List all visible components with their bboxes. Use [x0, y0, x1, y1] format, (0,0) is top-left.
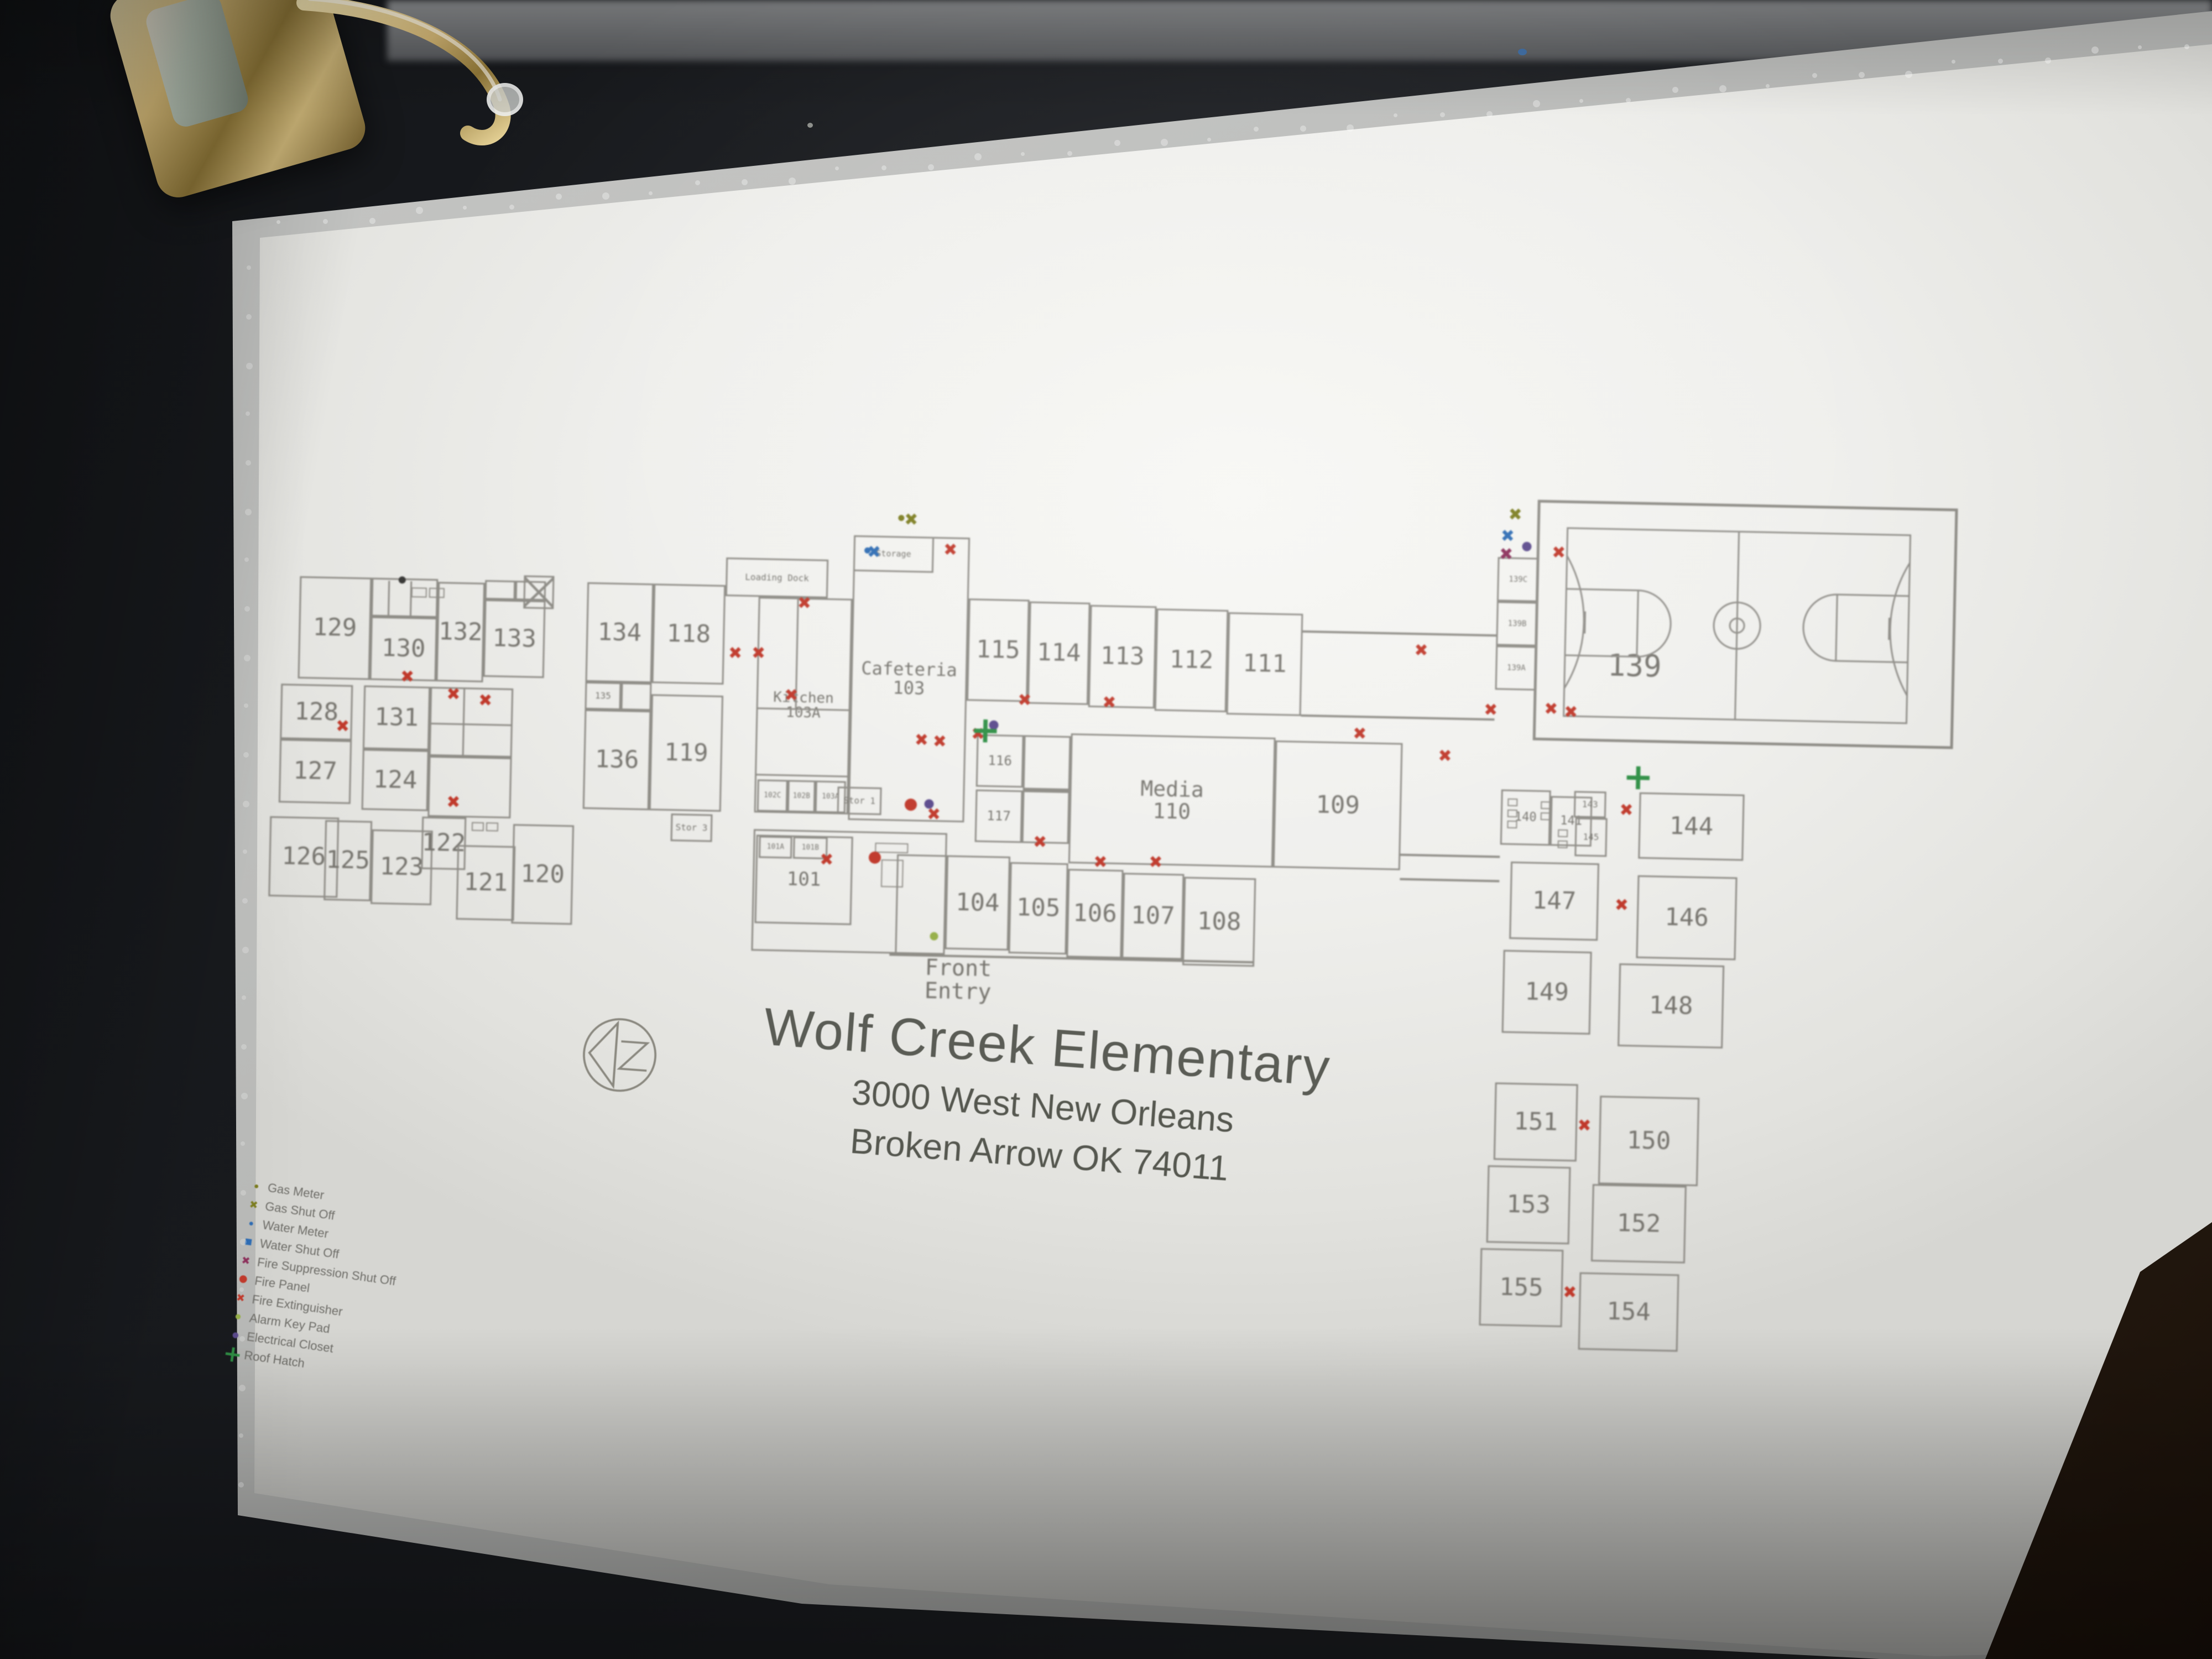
room-134: 134	[586, 582, 654, 683]
room-label: 120	[520, 861, 565, 888]
room-102b: 102B	[787, 780, 816, 812]
room-120: 120	[511, 824, 574, 925]
room-label: 112	[1169, 647, 1213, 674]
room-label: 114	[1037, 640, 1081, 666]
sleeve-bubble	[246, 363, 253, 369]
room-cell	[429, 687, 514, 758]
room-144: 144	[1638, 792, 1744, 861]
room-label: Media110	[1140, 778, 1204, 823]
sleeve-bubble	[242, 995, 246, 1000]
sleeve-bubble	[1486, 111, 1493, 117]
room-label-2: 110	[1140, 800, 1203, 823]
room-139c: 139C	[1497, 557, 1540, 602]
room-label: 129	[312, 615, 357, 641]
room-label: 125	[326, 847, 370, 874]
room-146: 146	[1636, 875, 1737, 961]
room-label: 118	[666, 621, 711, 648]
sleeve-bubble	[1672, 87, 1678, 93]
room-155: 155	[1479, 1248, 1563, 1327]
room-label: 101B	[802, 844, 820, 852]
binder-ring-icon	[265, 0, 575, 210]
room-label: 103A	[822, 793, 839, 801]
room-storage: Storage	[853, 535, 934, 573]
fire-extinguisher-glyph	[236, 1291, 246, 1305]
fixture	[1541, 812, 1551, 820]
room-125: 125	[324, 820, 372, 901]
sleeve-bubble	[649, 191, 653, 195]
room-label: 119	[664, 740, 708, 766]
sleeve-bubble	[2091, 46, 2099, 54]
room-label: 116	[988, 754, 1012, 768]
marker-fire-extinguisher-icon	[1615, 895, 1629, 915]
room-label: 126	[281, 844, 326, 870]
room-label: 147	[1532, 888, 1576, 915]
sleeve-bubble	[1114, 140, 1120, 146]
room-151: 151	[1494, 1082, 1578, 1161]
room-loading-dock: Loading Dock	[726, 557, 828, 598]
fixture	[875, 843, 908, 853]
fixture	[1558, 830, 1568, 837]
room-label: 143	[1582, 800, 1598, 809]
room-label: 133	[492, 625, 536, 652]
sleeve-bubble	[742, 179, 748, 185]
room-label: 127	[293, 758, 337, 785]
room-label: 105	[1016, 895, 1060, 922]
fixture	[411, 587, 427, 598]
room-cell	[1023, 735, 1071, 791]
room-109: 109	[1273, 740, 1403, 870]
fire-suppression-shut-off-glyph	[241, 1254, 251, 1267]
water-meter-icon	[244, 1220, 259, 1226]
fixture	[1558, 841, 1568, 848]
marker-fire-extinguisher-icon	[728, 644, 743, 664]
room-label: 135	[595, 691, 611, 701]
room-131: 131	[363, 685, 430, 750]
fixture	[486, 822, 498, 831]
marker-fire-extinguisher-icon	[1484, 700, 1498, 720]
room-147: 147	[1509, 862, 1599, 941]
roof-hatch-icon	[224, 1339, 242, 1368]
room-label: Kitchen103A	[773, 690, 834, 722]
room-115: 115	[967, 598, 1030, 702]
room-145: 145	[1574, 817, 1607, 857]
room-cell	[620, 682, 651, 711]
gray-speck	[807, 123, 813, 128]
room-stor-1: Stor 1	[837, 786, 882, 815]
room-cafeteria: Cafeteria103	[848, 535, 970, 822]
sleeve-bubble	[239, 1433, 243, 1438]
room-117: 117	[975, 790, 1023, 843]
room-135: 135	[585, 682, 621, 710]
marker-gas-shut-off-icon	[1508, 505, 1522, 525]
room-121: 121	[456, 845, 515, 921]
marker-gas-meter-icon	[898, 515, 904, 521]
room-cell	[371, 578, 438, 618]
sleeve-bubble	[246, 460, 251, 466]
room-104: 104	[945, 855, 1011, 951]
gas-meter-glyph	[254, 1184, 259, 1188]
room-label: 152	[1616, 1211, 1661, 1237]
room-152: 152	[1591, 1184, 1687, 1264]
water-meter-glyph	[249, 1221, 253, 1225]
marker-fire-extinguisher-icon	[1438, 747, 1452, 766]
room-139a: 139A	[1495, 645, 1538, 691]
electrical-closet-glyph	[232, 1332, 239, 1338]
fire-panel-icon	[236, 1275, 251, 1284]
wall-segment	[1301, 714, 1494, 721]
basketball-court	[1536, 503, 1961, 752]
room-label: 134	[597, 619, 641, 646]
room-143: 143	[1574, 791, 1606, 818]
room-label: 108	[1197, 909, 1241, 935]
room-139: 139	[1533, 500, 1958, 749]
sleeve-bubble	[1626, 98, 1631, 103]
room-119: 119	[649, 694, 723, 812]
fixture	[1541, 801, 1551, 809]
sleeve-bubble	[1394, 113, 1397, 117]
fire-extinguisher-icon	[233, 1291, 249, 1305]
room-112: 112	[1155, 608, 1229, 712]
room-105: 105	[1008, 862, 1068, 954]
room-label: 123	[379, 854, 424, 880]
room-116: 116	[976, 734, 1024, 788]
room-101b: 101B	[793, 837, 828, 859]
room-label: 139C	[1509, 575, 1527, 583]
room-label: Stor 1	[843, 796, 875, 806]
room-101a: 101A	[759, 836, 792, 858]
marker-fire-extinguisher-icon	[1414, 641, 1428, 661]
wall-segment	[1400, 878, 1499, 883]
alarm-key-pad-glyph	[235, 1313, 241, 1319]
alarm-key-pad-icon	[231, 1313, 246, 1320]
sleeve-bubble	[2045, 58, 2051, 64]
sleeve-bubble	[244, 606, 250, 612]
room-label: 102C	[764, 792, 781, 800]
room-149: 149	[1502, 950, 1592, 1035]
room-label: 139A	[1507, 664, 1526, 672]
room-128: 128	[280, 684, 353, 740]
sleeve-bubble	[243, 849, 247, 854]
room-label: 155	[1499, 1275, 1543, 1301]
school-logo	[578, 1014, 661, 1097]
photo-of-floor-plan-binder-page: 1291301321331281271261311241251231221211…	[0, 0, 2212, 1659]
sleeve-bubble	[243, 752, 249, 758]
fire-panel-glyph	[239, 1275, 247, 1283]
room-label: 121	[463, 870, 508, 896]
sleeve-bubble	[238, 1482, 244, 1488]
marker-fire-extinguisher-icon	[1563, 1283, 1577, 1303]
gas-meter-icon	[249, 1183, 264, 1189]
sleeve-bubble	[1579, 99, 1583, 103]
room-102c: 102C	[757, 779, 788, 812]
floor-plan: 1291301321331281271261311241251231221211…	[222, 111, 2211, 1659]
sleeve-bubble	[247, 265, 251, 270]
room-label: Storage	[876, 549, 911, 559]
sleeve-bubble	[242, 947, 249, 953]
gas-shut-off-icon	[246, 1198, 262, 1212]
room-label: Loading Dock	[745, 572, 809, 583]
marker-electrical-closet-icon	[989, 721, 998, 730]
room-cell	[485, 580, 516, 600]
sleeve-bubble	[463, 206, 467, 210]
blue-speck	[1518, 49, 1527, 55]
room-label: 148	[1648, 993, 1693, 1019]
fixture	[881, 859, 904, 888]
room-153: 153	[1486, 1165, 1571, 1244]
sleeve-bubble	[509, 205, 514, 210]
sleeve-bubble	[1254, 127, 1259, 132]
room-113: 113	[1088, 605, 1157, 708]
room-label: 145	[1583, 832, 1599, 842]
room-label: 154	[1606, 1299, 1651, 1326]
sleeve-bubble	[1161, 139, 1168, 146]
marker-fire-extinguisher-icon	[1619, 800, 1634, 820]
room-label: 153	[1506, 1192, 1551, 1218]
room-label: 132	[439, 619, 483, 645]
room-label: 106	[1073, 900, 1117, 927]
fixture	[472, 822, 484, 831]
room-label: 151	[1514, 1109, 1558, 1135]
room-label: 146	[1665, 905, 1709, 931]
marker-fire-extinguisher-icon	[1577, 1116, 1592, 1136]
room-label: Stor 3	[675, 823, 707, 833]
room-label-2: 103	[860, 678, 957, 698]
room-stor-3: Stor 3	[670, 813, 712, 842]
room-label: 101	[786, 870, 821, 890]
room-label: 131	[374, 705, 419, 731]
room-127: 127	[279, 739, 352, 804]
sleeve-bubble	[239, 1336, 245, 1342]
room-label: 101A	[767, 843, 785, 851]
wall-segment	[1400, 854, 1500, 858]
sleeve-punch-hole	[487, 83, 523, 116]
fixture	[1507, 821, 1517, 828]
room-label: 140	[1515, 811, 1537, 824]
room-label: 150	[1626, 1128, 1671, 1154]
legend: Gas MeterGas Shut OffWater MeterWater Sh…	[220, 1175, 408, 1384]
sleeve-bubble	[2138, 45, 2142, 49]
room-label: 109	[1316, 792, 1360, 818]
sleeve-bubble	[241, 1093, 248, 1099]
room-106: 106	[1066, 869, 1123, 958]
room-label: 104	[956, 890, 1000, 916]
room-150: 150	[1598, 1095, 1699, 1186]
sleeve-bubble	[241, 1190, 246, 1196]
room-129: 129	[298, 576, 372, 680]
marker-water-shut-off-icon	[1500, 526, 1515, 546]
sleeve-bubble	[695, 180, 700, 185]
room-label-2: Entry	[924, 979, 991, 1004]
room-label: 136	[594, 747, 639, 773]
wall-segment	[1303, 630, 1496, 637]
room-label: 130	[381, 635, 425, 662]
room-label: 107	[1131, 903, 1175, 930]
marker-gas-shut-off-icon	[904, 510, 919, 530]
room-124: 124	[362, 749, 429, 811]
marker-fire-extinguisher-icon	[1353, 724, 1367, 744]
room-label: 144	[1669, 813, 1713, 840]
sleeve-bubble	[323, 219, 328, 224]
room-118: 118	[651, 583, 726, 685]
fixture	[1507, 810, 1517, 817]
room-label: 111	[1243, 651, 1287, 677]
room-139b: 139B	[1496, 601, 1538, 646]
fixture	[1507, 799, 1517, 806]
sleeve-bubble	[244, 703, 248, 708]
room-cell	[523, 575, 554, 609]
sleeve-bubble	[1719, 85, 1726, 92]
room-label: 149	[1525, 979, 1569, 1005]
room-label: 102B	[792, 792, 810, 800]
room-cell	[427, 756, 512, 818]
room-label: 117	[987, 809, 1011, 823]
room-111: 111	[1227, 612, 1303, 716]
gas-shut-off-glyph	[248, 1198, 258, 1212]
room-108: 108	[1182, 877, 1256, 967]
marker-electrical-closet-icon	[1522, 542, 1531, 551]
room-label: Cafeteria103	[860, 659, 957, 698]
room-media: Media110	[1068, 733, 1276, 868]
room-107: 107	[1121, 873, 1184, 959]
room-label: 128	[294, 699, 338, 726]
fixture	[429, 588, 445, 598]
sleeve-bubble	[602, 192, 609, 200]
room-154: 154	[1578, 1272, 1679, 1352]
sleeve-bubble	[1533, 100, 1540, 107]
room-114: 114	[1027, 602, 1091, 705]
sleeve-bubble	[245, 509, 252, 515]
sleeve-bubble	[556, 194, 562, 200]
roof-hatch-glyph	[222, 1339, 244, 1368]
fire-suppression-shut-off-icon	[238, 1254, 254, 1267]
room-label: 113	[1100, 644, 1144, 670]
sleeve-bubble	[276, 220, 280, 224]
room-cell	[1022, 790, 1070, 844]
marker-roof-hatch-icon	[1623, 755, 1654, 799]
sleeve-bubble	[1440, 112, 1445, 117]
sleeve-bubble	[240, 1239, 247, 1245]
sleeve-bubble	[1207, 138, 1211, 142]
room-label: 115	[976, 637, 1020, 664]
room-label: FrontEntry	[924, 956, 992, 1004]
room-136: 136	[583, 709, 651, 810]
room-133: 133	[483, 599, 546, 678]
room-label: 139B	[1508, 619, 1527, 628]
sleeve-bubble	[2184, 44, 2189, 49]
room-label: 124	[373, 767, 417, 794]
room-148: 148	[1618, 963, 1724, 1048]
room-130: 130	[369, 617, 437, 681]
